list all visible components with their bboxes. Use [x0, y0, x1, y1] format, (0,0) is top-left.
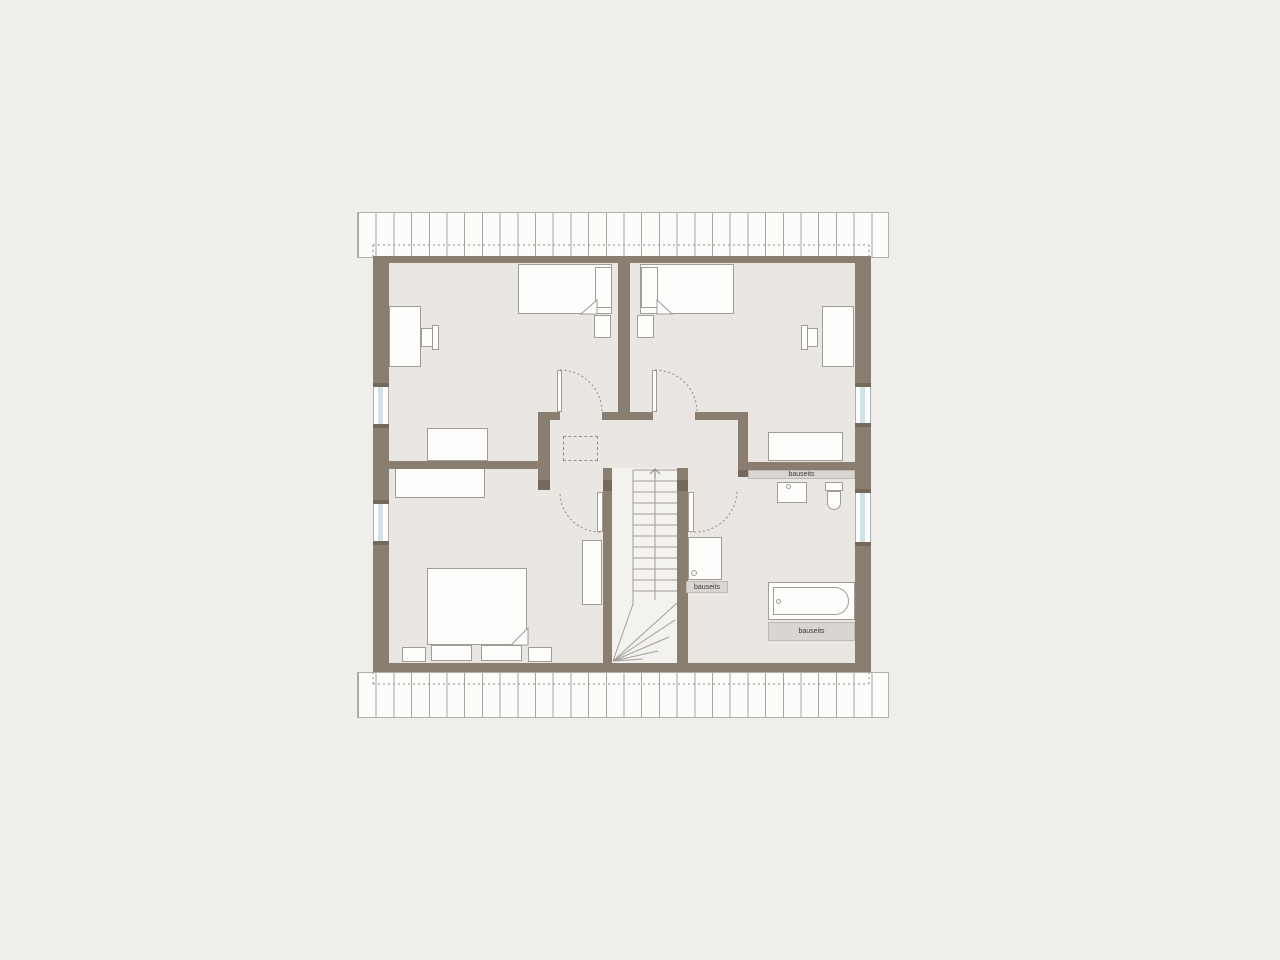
door-leaf-bedroom-top-right: [652, 370, 657, 412]
wall-exterior-bottom: [373, 663, 871, 672]
label-strip-tub: bauseits: [768, 622, 855, 641]
chair-left-back: [432, 325, 439, 350]
wall-exterior-left: [373, 256, 389, 672]
floorplan-canvas: bauseits bauseits bauseits: [0, 0, 1280, 960]
desk-right: [822, 306, 854, 367]
window-left-lower-cap1: [373, 500, 389, 504]
window-right-lower-cap2: [855, 542, 871, 546]
nightstand-double-right: [528, 647, 552, 662]
tall-wardrobe-master: [582, 540, 602, 605]
dresser-top-left-room: [427, 428, 488, 461]
wall-interior-left: [388, 461, 550, 469]
doorframe-cap-hall-left: [538, 480, 550, 490]
nightstand-double-left: [402, 647, 426, 662]
label-bauseits-shower: bauseits: [694, 584, 720, 591]
wardrobe-master: [395, 468, 485, 498]
label-bauseits-tub: bauseits: [798, 628, 824, 635]
pillow-double-left: [431, 645, 472, 661]
window-right-lower-glass: [860, 493, 865, 542]
pillow-double-right: [481, 645, 522, 661]
roof-hatch-top: [357, 212, 889, 258]
window-right-upper-glass: [860, 387, 865, 423]
label-bauseits-bath-wall: bauseits: [788, 471, 814, 478]
window-right-upper-cap2: [855, 423, 871, 427]
shower-drain: [691, 570, 697, 576]
stairwell-floor: [612, 468, 677, 663]
door-leaf-master-bedroom: [597, 492, 603, 532]
wall-interior-right: [738, 462, 855, 470]
door-leaf-bathroom: [688, 492, 694, 532]
desk-left: [389, 306, 421, 367]
pillow-left-bed: [595, 267, 612, 308]
bathtub-inner: [773, 587, 849, 615]
window-left-upper-cap1: [373, 383, 389, 387]
doorframe-cap-bath: [738, 470, 748, 477]
wc-cistern: [825, 482, 843, 491]
window-left-upper-glass: [378, 387, 383, 424]
roof-hatch-bottom: [357, 672, 889, 718]
chair-right-back: [801, 325, 808, 350]
doorframe-cap-stair-right: [677, 480, 688, 491]
window-left-lower-glass: [378, 504, 383, 541]
bathtub-drain: [776, 599, 781, 604]
label-strip-shower: bauseits: [686, 581, 728, 593]
window-left-lower-cap2: [373, 541, 389, 545]
window-right-upper-cap1: [855, 383, 871, 387]
sideboard-top-right-room: [768, 432, 843, 461]
wall-center-divider: [618, 256, 630, 412]
washbasin-faucet: [786, 484, 791, 489]
doorframe-cap-stair-left: [603, 480, 612, 491]
hall-dashed-square: [563, 436, 598, 461]
wall-hall-top-right: [695, 412, 748, 420]
nightstand-left-bed: [594, 315, 611, 338]
wall-hall-left-vertical: [538, 412, 550, 490]
door-leaf-bedroom-top-left: [557, 370, 562, 412]
wall-hall-top-stub: [602, 412, 653, 420]
wall-exterior-right: [855, 256, 871, 672]
window-left-upper-cap2: [373, 424, 389, 428]
bed-double: [427, 568, 527, 645]
wc-bowl: [827, 491, 841, 510]
washbasin: [777, 482, 807, 503]
pillow-right-bed: [641, 267, 658, 308]
nightstand-right-bed: [637, 315, 654, 338]
window-right-lower-cap1: [855, 489, 871, 493]
wall-stair-right: [677, 468, 688, 663]
wall-stair-left: [603, 468, 612, 663]
label-strip-bath-wall: bauseits: [748, 470, 855, 479]
